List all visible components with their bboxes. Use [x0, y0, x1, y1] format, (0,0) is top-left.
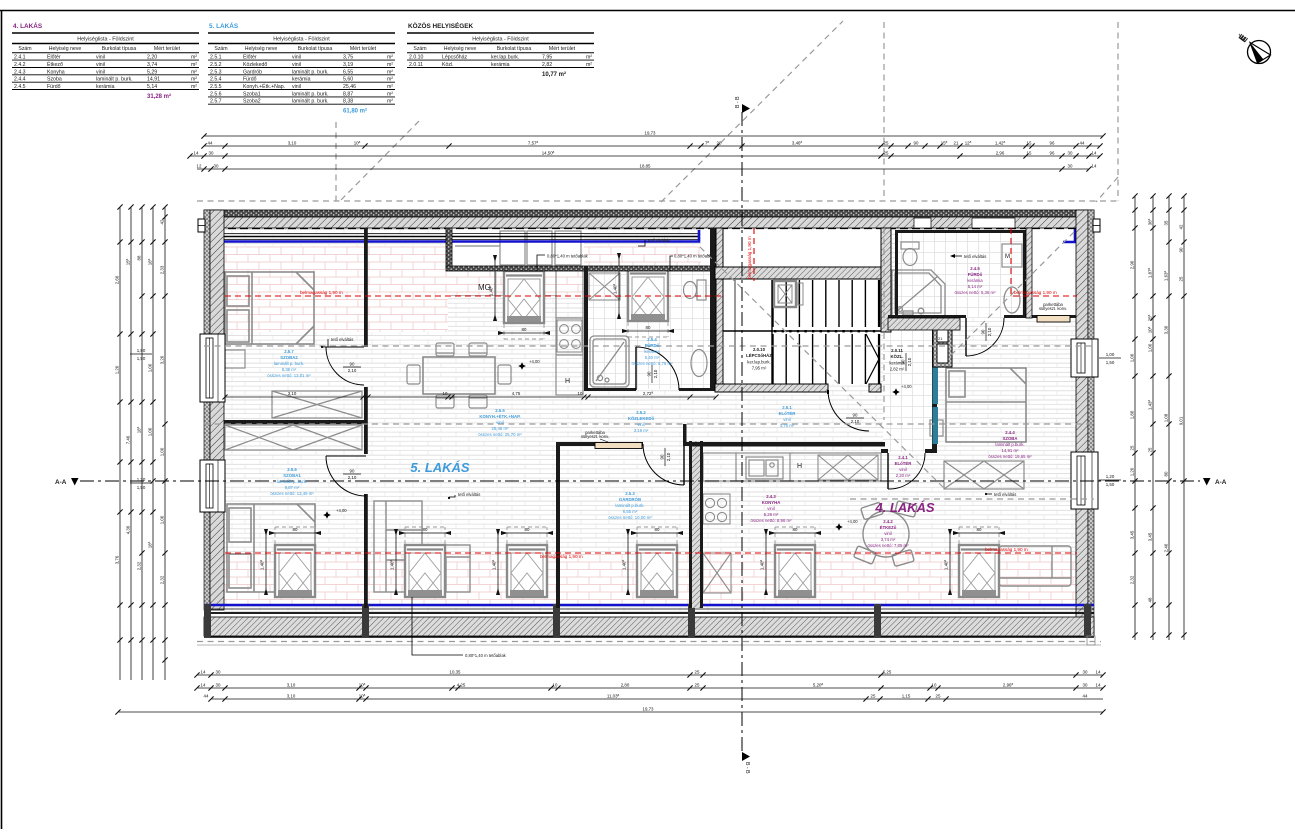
svg-text:laminált p. burk.: laminált p. burk.: [96, 77, 133, 83]
svg-text:A-A: A-A: [1215, 479, 1227, 486]
svg-text:2.4.4: 2.4.4: [14, 77, 26, 83]
svg-text:7,46: 7,46: [125, 435, 130, 444]
svg-text:80: 80: [977, 527, 982, 532]
svg-text:ker.lap.burk.: ker.lap.burk.: [747, 359, 770, 364]
svg-text:4,36: 4,36: [125, 525, 130, 534]
svg-text:B - B: B - B: [735, 96, 741, 108]
svg-text:4. LAKÁS: 4. LAKÁS: [874, 500, 935, 515]
svg-text:80: 80: [646, 325, 651, 330]
svg-text:5,60: 5,60: [343, 77, 353, 83]
svg-text:2.5.4: 2.5.4: [210, 77, 222, 83]
svg-text:14: 14: [201, 669, 206, 674]
svg-text:5,20ª: 5,20ª: [813, 682, 824, 687]
svg-text:7,57ª: 7,57ª: [528, 140, 539, 145]
svg-text:19,73: 19,73: [643, 706, 655, 711]
svg-text:30: 30: [1083, 669, 1088, 674]
svg-text:2,32: 2,32: [159, 575, 164, 584]
svg-text:1,43ª: 1,43ª: [1147, 400, 1152, 411]
svg-text:2,10: 2,10: [907, 357, 912, 366]
svg-text:80: 80: [293, 527, 298, 532]
svg-text:1,20: 1,20: [137, 477, 146, 482]
svg-text:laminált p. burk.: laminált p. burk.: [292, 91, 329, 97]
svg-text:ELőTÉR: ELőTÉR: [779, 411, 797, 416]
svg-text:süllyeszt. konv.: süllyeszt. konv.: [1039, 306, 1067, 311]
svg-text:10,35: 10,35: [450, 669, 462, 674]
svg-text:vinil: vinil: [767, 506, 774, 511]
svg-text:Étkező: Étkező: [47, 61, 63, 68]
svg-text:2.4.4: 2.4.4: [1005, 430, 1015, 435]
svg-text:kerámia: kerámia: [292, 77, 311, 83]
svg-text:KONYHA: KONYHA: [762, 500, 781, 505]
svg-text:2,82 m²: 2,82 m²: [890, 367, 905, 372]
svg-text:KONYH.+ÉTK.+NAP.: KONYH.+ÉTK.+NAP.: [479, 414, 520, 419]
svg-text:25: 25: [1129, 445, 1134, 450]
svg-text:B - B: B - B: [744, 762, 750, 774]
svg-text:12ª: 12ª: [965, 140, 972, 145]
svg-text:80: 80: [522, 327, 527, 332]
svg-text:belmagasság 1,90 m: belmagasság 1,90 m: [1014, 290, 1057, 295]
svg-text:3,75 m²: 3,75 m²: [780, 423, 795, 428]
svg-text:2,96: 2,96: [996, 150, 1005, 155]
svg-text:10ª: 10ª: [359, 682, 366, 687]
svg-text:2,96ª: 2,96ª: [1003, 682, 1014, 687]
svg-text:tető elváltás: tető elváltás: [964, 254, 986, 259]
svg-text:Helyiség neve: Helyiség neve: [49, 46, 82, 52]
svg-text:4,25: 4,25: [457, 682, 466, 687]
svg-text:Mért terület: Mért terület: [350, 46, 377, 52]
svg-text:30: 30: [216, 669, 221, 674]
svg-text:10: 10: [443, 391, 448, 396]
svg-text:30: 30: [209, 150, 214, 155]
svg-text:összes nettó: 5,36 m²: összes nettó: 5,36 m²: [954, 290, 996, 295]
svg-text:42: 42: [1178, 224, 1183, 229]
svg-text:1,50: 1,50: [1106, 360, 1115, 365]
svg-text:összes nettó: 7,85 m²: összes nettó: 7,85 m²: [867, 543, 909, 548]
svg-text:Mért terület: Mért terület: [154, 46, 181, 52]
svg-text:H: H: [565, 378, 570, 385]
svg-text:Helyiséglista - Földszint: Helyiséglista - Földszint: [77, 37, 134, 43]
svg-text:16ª: 16ª: [147, 258, 152, 265]
svg-text:16ª: 16ª: [147, 541, 152, 548]
svg-text:Mért terület: Mért terület: [549, 46, 576, 52]
svg-text:tető elváltás: tető elváltás: [994, 492, 1016, 497]
svg-text:1,40ª: 1,40ª: [489, 286, 494, 297]
svg-text:1,00: 1,00: [1106, 352, 1115, 357]
svg-text:SZOBA1: SZOBA1: [283, 473, 301, 478]
svg-text:vinil: vinil: [884, 531, 891, 536]
svg-text:ÉTKEZő: ÉTKEZő: [880, 525, 897, 530]
svg-text:21: 21: [954, 140, 959, 145]
svg-text:80: 80: [525, 527, 530, 532]
svg-text:1,40ª: 1,40ª: [622, 560, 627, 571]
svg-text:2,90: 2,90: [1129, 260, 1134, 269]
svg-text:14,91: 14,91: [147, 77, 160, 83]
svg-text:SZOBA: SZOBA: [1002, 436, 1017, 441]
svg-text:M: M: [1005, 254, 1010, 260]
svg-text:1,15: 1,15: [902, 693, 911, 698]
svg-text:1,20: 1,20: [1129, 467, 1134, 476]
svg-text:10ª: 10ª: [354, 140, 361, 145]
svg-text:kerámia: kerámia: [967, 278, 983, 283]
svg-text:összes nettó: 10,00 m²: összes nettó: 10,00 m²: [608, 515, 652, 520]
svg-text:8,87 m²: 8,87 m²: [285, 485, 300, 490]
svg-text:2,10: 2,10: [851, 419, 860, 424]
svg-text:80: 80: [655, 527, 660, 532]
svg-text:1,50: 1,50: [1106, 482, 1115, 487]
svg-text:m²: m²: [191, 77, 197, 83]
svg-text:14: 14: [1092, 150, 1097, 155]
svg-text:2.5.4: 2.5.4: [647, 337, 657, 342]
svg-text:8,87: 8,87: [343, 91, 353, 97]
svg-text:KÖZLEKEDő: KÖZLEKEDő: [628, 416, 655, 421]
svg-text:2,46: 2,46: [1163, 543, 1168, 552]
svg-text:10: 10: [578, 391, 583, 396]
svg-text:3,10: 3,10: [287, 693, 296, 698]
svg-text:61,80 m²: 61,80 m²: [343, 108, 367, 115]
svg-text:3,30: 3,30: [1163, 325, 1168, 334]
svg-text:2.5.2: 2.5.2: [636, 410, 646, 415]
svg-text:80: 80: [793, 527, 798, 532]
svg-text:Helyiség neve: Helyiség neve: [444, 46, 477, 52]
svg-text:süllyeszt. konv.: süllyeszt. konv.: [581, 434, 609, 439]
svg-text:90: 90: [350, 469, 355, 474]
svg-text:+4,00: +4,00: [529, 359, 540, 364]
svg-text:3,10: 3,10: [288, 391, 297, 396]
svg-text:SZOBA2: SZOBA2: [280, 355, 298, 360]
svg-text:10,77 m²: 10,77 m²: [542, 71, 566, 78]
svg-text:tető elváltás: tető elváltás: [331, 337, 353, 342]
svg-text:m²: m²: [387, 77, 393, 83]
svg-text:25: 25: [695, 669, 700, 674]
svg-text:0,80*1,40 m tetőablak: 0,80*1,40 m tetőablak: [465, 653, 507, 658]
svg-text:2,80: 2,80: [621, 682, 630, 687]
svg-text:KÖZÖS HELYISÉGEK: KÖZÖS HELYISÉGEK: [408, 21, 473, 30]
svg-text:Szám: Szám: [413, 46, 426, 52]
svg-text:LÉPCSőHÁZ: LÉPCSőHÁZ: [746, 353, 772, 358]
svg-text:belmagasság 1,90 m: belmagasság 1,90 m: [300, 290, 343, 295]
svg-text:14,91 m²: 14,91 m²: [1002, 448, 1020, 453]
svg-text:2,10: 2,10: [666, 452, 671, 461]
svg-text:1,87ª: 1,87ª: [1147, 268, 1152, 279]
svg-text:1,40ª: 1,40ª: [760, 560, 765, 571]
svg-text:80: 80: [1163, 471, 1168, 476]
svg-text:30: 30: [216, 682, 221, 687]
svg-text:tető elváltás: tető elváltás: [648, 238, 670, 243]
svg-text:42: 42: [159, 219, 164, 224]
svg-text:laminált p. burk.: laminált p. burk.: [277, 479, 307, 484]
svg-text:6,55 m²: 6,55 m²: [623, 509, 638, 514]
svg-text:1,40ª: 1,40ª: [390, 560, 395, 571]
svg-text:90: 90: [853, 413, 858, 418]
svg-text:2,10: 2,10: [348, 368, 357, 373]
svg-text:3,74 m²: 3,74 m²: [881, 537, 896, 542]
svg-text:19,73: 19,73: [645, 130, 657, 135]
svg-text:2,72ª: 2,72ª: [643, 391, 654, 396]
svg-text:11,03ª: 11,03ª: [607, 693, 620, 698]
svg-text:14: 14: [201, 682, 206, 687]
svg-text:14,50ª: 14,50ª: [542, 150, 555, 155]
svg-text:2.5.6: 2.5.6: [210, 91, 222, 97]
svg-text:belmagasság 1,90 m: belmagasság 1,90 m: [985, 547, 1028, 552]
svg-text:2,10: 2,10: [653, 369, 658, 378]
svg-text:Burkolat típusa: Burkolat típusa: [497, 46, 532, 52]
svg-text:1,20: 1,20: [114, 365, 119, 374]
svg-text:2.4.2: 2.4.2: [883, 519, 893, 524]
svg-text:Szám: Szám: [18, 46, 31, 52]
svg-text:Fürdő: Fürdő: [243, 77, 257, 83]
svg-text:A-A: A-A: [55, 479, 67, 486]
svg-text:30: 30: [214, 163, 219, 168]
svg-text:1,40ª: 1,40ª: [613, 284, 618, 295]
svg-text:3,76: 3,76: [114, 555, 119, 564]
svg-text:0,80*1,40 m tetőablak: 0,80*1,40 m tetőablak: [547, 254, 589, 259]
svg-text:3,46ª: 3,46ª: [792, 140, 803, 145]
svg-text:1,63ª: 1,63ª: [1163, 271, 1168, 282]
svg-text:14: 14: [1096, 682, 1101, 687]
svg-text:2,32: 2,32: [136, 561, 141, 570]
svg-text:2.5.7: 2.5.7: [284, 349, 294, 354]
svg-text:2.5.5: 2.5.5: [495, 408, 505, 413]
svg-text:2.4.5: 2.4.5: [970, 266, 980, 271]
svg-text:2,66: 2,66: [114, 275, 119, 284]
svg-text:80: 80: [423, 527, 428, 532]
svg-text:44: 44: [208, 140, 213, 145]
svg-text:6,25: 6,25: [883, 669, 892, 674]
svg-text:30: 30: [1068, 150, 1073, 155]
svg-text:belmagasság 1,90 m: belmagasság 1,90 m: [540, 554, 583, 559]
svg-text:2.5.1: 2.5.1: [782, 405, 792, 410]
svg-text:1,08: 1,08: [1163, 413, 1168, 422]
svg-text:3,45: 3,45: [1147, 532, 1152, 541]
svg-text:laminált p.burk.: laminált p.burk.: [615, 503, 644, 508]
svg-text:Helyiséglista - Földszint: Helyiséglista - Földszint: [273, 37, 330, 43]
svg-text:2,20 m²: 2,20 m²: [896, 473, 911, 478]
svg-text:7ª: 7ª: [705, 140, 709, 145]
svg-text:3,10: 3,10: [287, 682, 296, 687]
svg-text:90: 90: [660, 454, 665, 459]
svg-text:ELőTÉR: ELőTÉR: [895, 461, 913, 466]
svg-text:vinil: vinil: [783, 417, 790, 422]
svg-text:Szoba1: Szoba1: [243, 91, 261, 97]
svg-text:+4,00: +4,00: [901, 384, 912, 389]
svg-text:GARDRÓB: GARDRÓB: [619, 497, 641, 502]
svg-text:2,32: 2,32: [1129, 575, 1134, 584]
svg-text:25,46 m²: 25,46 m²: [492, 426, 510, 431]
svg-text:2,10: 2,10: [987, 327, 992, 336]
svg-text:25: 25: [936, 693, 941, 698]
svg-text:1,42ª: 1,42ª: [995, 140, 1006, 145]
svg-text:10ª: 10ª: [359, 693, 366, 698]
svg-text:1,50: 1,50: [137, 356, 146, 361]
svg-text:2.5.6: 2.5.6: [287, 467, 297, 472]
svg-text:1,40ª: 1,40ª: [944, 560, 949, 571]
svg-text:Helyiséglista - Földszint: Helyiséglista - Földszint: [472, 37, 529, 43]
svg-text:15ª: 15ª: [941, 140, 948, 145]
svg-text:2.5.3: 2.5.3: [625, 491, 635, 496]
svg-text:1,00: 1,00: [1147, 343, 1152, 352]
svg-text:7,95 m²: 7,95 m²: [752, 366, 767, 371]
svg-text:90: 90: [901, 359, 906, 364]
svg-text:3,19 m²: 3,19 m²: [634, 428, 649, 433]
svg-text:10: 10: [553, 682, 558, 687]
svg-text:H: H: [797, 463, 802, 470]
svg-text:30: 30: [1083, 682, 1088, 687]
svg-text:90: 90: [647, 371, 652, 376]
svg-text:KÖZL.: KÖZL.: [891, 354, 904, 359]
svg-text:25: 25: [871, 693, 876, 698]
svg-text:20: 20: [717, 140, 722, 145]
svg-text:5,14 m²: 5,14 m²: [968, 284, 983, 289]
svg-text:1,00: 1,00: [1129, 353, 1134, 362]
svg-text:+4,00: +4,00: [847, 519, 858, 524]
svg-text:25: 25: [884, 150, 889, 155]
svg-text:4. LAKÁS: 4. LAKÁS: [13, 21, 43, 30]
svg-text:összes nettó: 8,96 m²: összes nettó: 8,96 m²: [750, 518, 792, 523]
svg-text:2.4.3: 2.4.3: [766, 494, 776, 499]
svg-text:10ª: 10ª: [1147, 326, 1152, 333]
svg-text:összes nettó: 25,70 m²: összes nettó: 25,70 m²: [478, 432, 522, 437]
svg-text:3,10: 3,10: [288, 140, 297, 145]
svg-text:25: 25: [695, 682, 700, 687]
svg-text:25ª: 25ª: [1147, 314, 1152, 321]
svg-text:belmagasság 1,90 m: belmagasság 1,90 m: [747, 236, 752, 279]
svg-text:48: 48: [1147, 597, 1152, 602]
svg-text:35: 35: [1163, 220, 1168, 225]
svg-text:10: 10: [932, 682, 937, 687]
svg-text:vinil: vinil: [899, 467, 906, 472]
svg-text:vinil: vinil: [637, 422, 644, 427]
svg-text:14: 14: [1092, 163, 1097, 168]
svg-text:2.4.1: 2.4.1: [898, 455, 908, 460]
svg-text:1,00: 1,00: [147, 427, 152, 436]
svg-text:31,28 m²: 31,28 m²: [147, 93, 171, 100]
svg-text:3,20: 3,20: [159, 355, 164, 364]
svg-text:2,33: 2,33: [159, 265, 164, 274]
svg-text:vinil: vinil: [496, 420, 503, 425]
svg-text:8,38 m²: 8,38 m²: [282, 367, 297, 372]
svg-text:1,00: 1,00: [159, 447, 164, 456]
svg-text:1,20: 1,20: [1106, 474, 1115, 479]
svg-text:88: 88: [136, 255, 141, 260]
svg-text:Konyh.+Étk.+Nap.: Konyh.+Étk.+Nap.: [243, 83, 285, 90]
svg-text:laminált p. burk.: laminált p. burk.: [274, 361, 304, 366]
svg-text:tető elváltás: tető elváltás: [458, 492, 480, 497]
svg-text:1,80: 1,80: [1129, 410, 1134, 419]
svg-text:3,45: 3,45: [1129, 530, 1134, 539]
svg-text:5. LAKÁS: 5. LAKÁS: [410, 460, 470, 475]
svg-text:összes nettó: 13,01 m²: összes nettó: 13,01 m²: [267, 373, 311, 378]
svg-text:14: 14: [194, 150, 199, 155]
svg-text:90: 90: [1178, 247, 1183, 252]
svg-text:15: 15: [1027, 150, 1032, 155]
svg-text:14: 14: [1096, 669, 1101, 674]
svg-text:25: 25: [1178, 276, 1183, 281]
svg-text:+4,00: +4,00: [336, 508, 347, 513]
svg-text:1,40ª: 1,40ª: [260, 560, 265, 571]
svg-text:12: 12: [197, 163, 202, 168]
svg-text:25: 25: [884, 140, 889, 145]
svg-text:FÜRDő: FÜRDő: [968, 272, 983, 277]
svg-text:36ª: 36ª: [1147, 218, 1152, 225]
svg-text:Szoba: Szoba: [47, 77, 62, 83]
svg-text:5,40 m²: 5,40 m²: [645, 355, 660, 360]
svg-text:1,40ª: 1,40ª: [492, 560, 497, 571]
svg-text:1,00: 1,00: [159, 515, 164, 524]
svg-text:kerámia: kerámia: [644, 349, 660, 354]
svg-text:5,29 m²: 5,29 m²: [764, 512, 779, 517]
svg-text:90: 90: [981, 329, 986, 334]
svg-text:összes nettó: 19,65 m²: összes nettó: 19,65 m²: [988, 454, 1032, 459]
svg-text:44: 44: [1080, 140, 1085, 145]
svg-text:Burkolat típusa: Burkolat típusa: [298, 46, 333, 52]
svg-text:96: 96: [1050, 140, 1055, 145]
svg-text:25: 25: [1147, 447, 1152, 452]
svg-text:2,10: 2,10: [348, 475, 357, 480]
svg-text:Burkolat típusa: Burkolat típusa: [102, 46, 137, 52]
svg-text:4,75: 4,75: [512, 391, 521, 396]
svg-text:5. LAKÁS: 5. LAKÁS: [209, 21, 239, 30]
svg-text:44: 44: [1083, 693, 1088, 698]
svg-text:16ª: 16ª: [136, 426, 141, 433]
svg-text:m²: m²: [387, 91, 393, 97]
svg-text:21: 21: [938, 336, 943, 341]
svg-text:9,01: 9,01: [1178, 416, 1183, 425]
svg-text:1,00: 1,00: [147, 363, 152, 372]
svg-text:1,80: 1,80: [137, 348, 146, 353]
svg-text:Szám: Szám: [214, 46, 227, 52]
svg-text:0,80*1,40 m tetőablak: 0,80*1,40 m tetőablak: [674, 254, 716, 259]
svg-text:15ª: 15ª: [125, 258, 130, 265]
svg-text:90: 90: [350, 362, 355, 367]
svg-text:15: 15: [1027, 140, 1032, 145]
svg-text:összes nettó: 13,49 m²: összes nettó: 13,49 m²: [270, 491, 314, 496]
svg-text:18,85: 18,85: [640, 163, 652, 168]
svg-text:2.0.11: 2.0.11: [891, 348, 903, 353]
svg-text:2.0.10: 2.0.10: [753, 347, 766, 352]
svg-text:44: 44: [204, 693, 209, 698]
svg-text:90: 90: [914, 140, 919, 145]
svg-text:96: 96: [1050, 150, 1055, 155]
svg-text:Helyiség neve: Helyiség neve: [245, 46, 278, 52]
svg-text:1,50: 1,50: [137, 485, 146, 490]
svg-text:FÜRDő: FÜRDő: [645, 343, 660, 348]
svg-text:laminált p.burk.: laminált p.burk.: [995, 442, 1024, 447]
svg-text:30: 30: [1068, 163, 1073, 168]
